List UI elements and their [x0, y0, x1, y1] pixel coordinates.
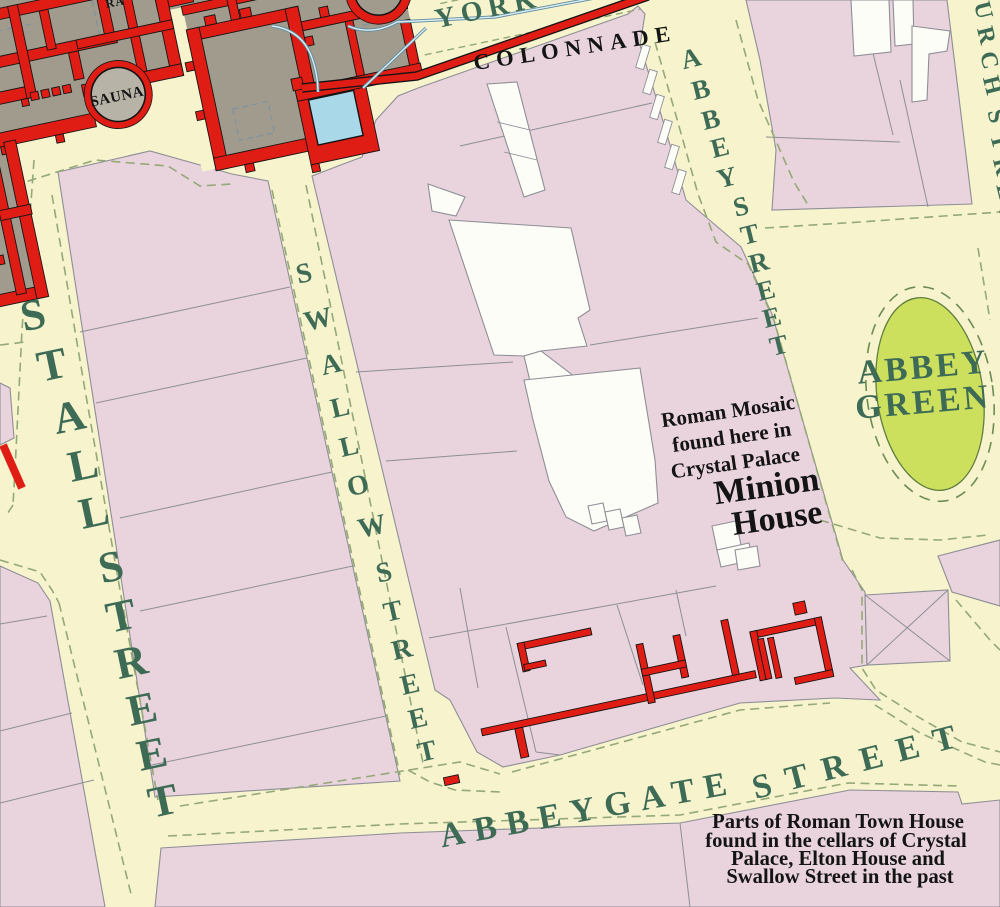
svg-text:Swallow Street in the past: Swallow Street in the past	[726, 866, 953, 888]
